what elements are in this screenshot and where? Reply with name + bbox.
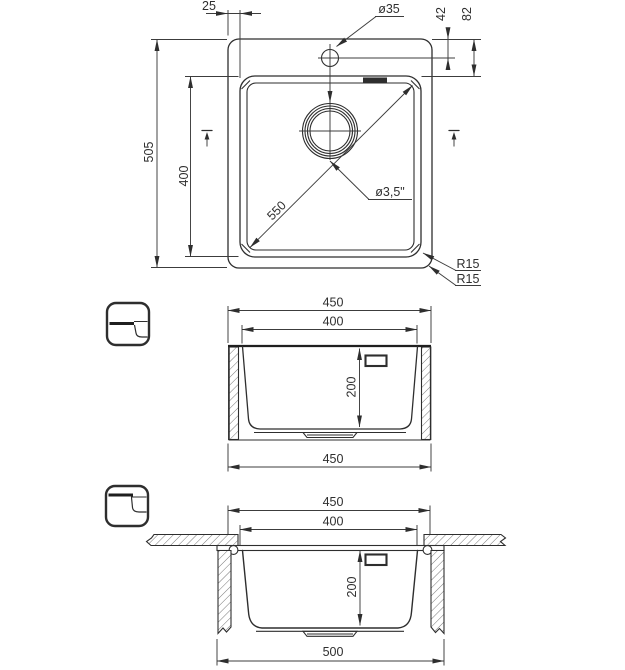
mount-column-right [431,551,444,634]
dim-505-label: 505 [142,142,156,163]
under-dim-400: 400 [240,515,417,550]
flush-wall-left [229,347,238,440]
flush-dim-450-bottom: 450 [228,444,431,472]
dim-drain-label: ø3,5" [375,185,404,199]
sink-technical-drawing: 25 ø35 42 82 505 [0,0,625,670]
top-view: 25 ø35 42 82 505 [142,0,481,286]
section-mark-right [449,131,459,147]
flush-bowl-profile [243,347,418,430]
section-mark-left [202,131,212,147]
flush-overflow [366,356,387,367]
dim-550: 550 [250,86,413,248]
flush-dim-200-label: 200 [345,377,359,398]
section-undermount: 450 400 200 [106,486,506,666]
dim-400-plan-label: 400 [177,166,191,187]
under-dim-200: 200 [345,551,360,626]
overflow-slot-plan [363,78,387,83]
flush-dim-450-top-label: 450 [323,296,344,310]
dim-505: 505 [142,40,227,268]
dim-o35-label: ø35 [378,2,400,16]
under-dim-400-label: 400 [323,515,344,529]
flush-wall-right [422,347,431,440]
under-bowl-profile [243,551,418,629]
under-dim-500-label: 500 [323,645,344,659]
dim-82: 82 [422,7,482,76]
dim-r15-outer-label: R15 [457,272,480,286]
dim-drain: ø3,5" [330,161,412,200]
flush-dim-200: 200 [345,349,360,428]
section-flush-mount: 450 400 200 [107,296,431,472]
flush-body [228,346,431,440]
under-dim-200-label: 200 [345,577,359,598]
dim-42-label: 42 [434,7,448,21]
under-dim-500: 500 [217,639,444,666]
flush-dim-400-label: 400 [323,315,344,329]
under-overflow [366,555,387,566]
flush-mount-icon [107,303,149,345]
dim-25-label: 25 [202,0,216,13]
dim-r15-inner-label: R15 [457,257,480,271]
dim-550-label: 550 [264,198,289,223]
under-dim-450-label: 450 [323,495,344,509]
drawing-canvas: 25 ø35 42 82 505 [0,0,625,670]
dim-faucet-hole: ø35 [337,2,405,47]
dim-400-plan: 400 [177,77,239,257]
flush-dim-400: 400 [242,315,417,344]
mount-column-left [218,551,231,634]
countertop-right [424,535,506,546]
undermount-icon [106,486,148,526]
dim-82-label: 82 [460,7,474,21]
flush-dim-450-bottom-label: 450 [323,452,344,466]
countertop-left [147,535,239,546]
sink-flange [217,546,444,551]
